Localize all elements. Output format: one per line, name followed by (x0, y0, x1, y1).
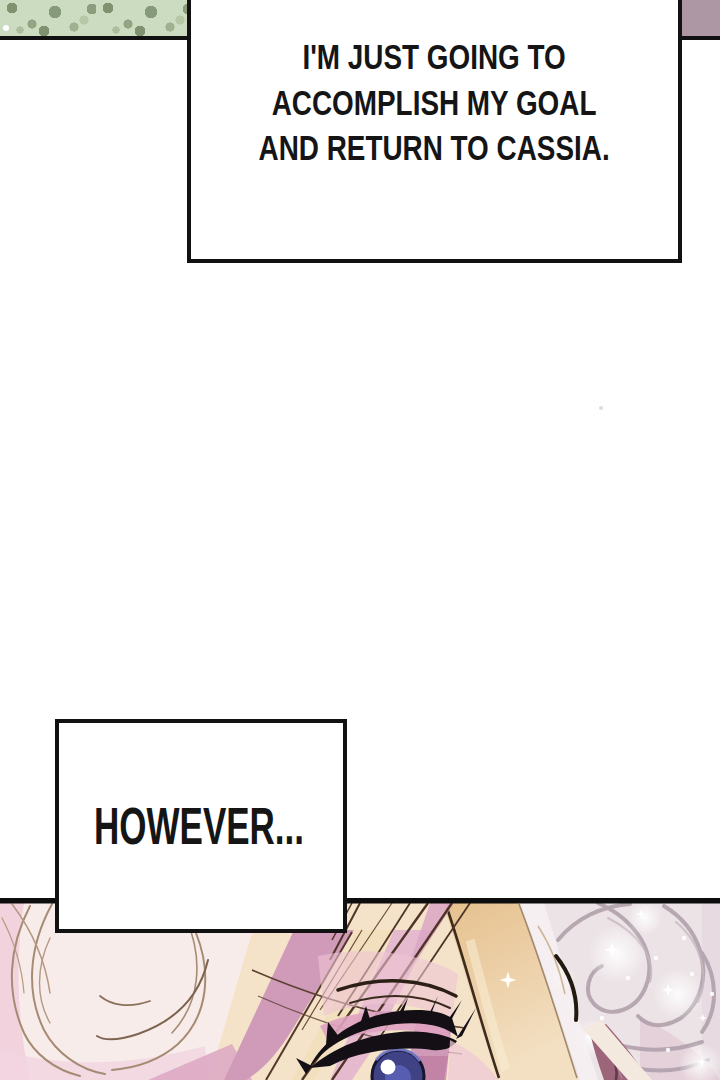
caption-line: ACCOMPLISH MY GOAL (259, 80, 610, 126)
speech-text: HOWEVER... (59, 796, 304, 856)
speech-box-goal: I'M JUST GOING TO ACCOMPLISH MY GOAL AND… (187, 0, 682, 263)
dust-speck (599, 406, 603, 410)
eye-highlight (381, 1060, 396, 1075)
top-panel-fragment-mauve (682, 0, 720, 40)
top-panel-fragment-foliage (0, 0, 190, 40)
caption-line: AND RETURN TO CASSIA. (259, 126, 610, 172)
highlight-dot (3, 25, 9, 31)
speech-text: I'M JUST GOING TO ACCOMPLISH MY GOAL AND… (259, 34, 610, 172)
speech-box-however: HOWEVER... (55, 719, 347, 933)
comic-page: I'M JUST GOING TO ACCOMPLISH MY GOAL AND… (0, 0, 720, 1080)
caption-line: I'M JUST GOING TO (259, 34, 610, 80)
